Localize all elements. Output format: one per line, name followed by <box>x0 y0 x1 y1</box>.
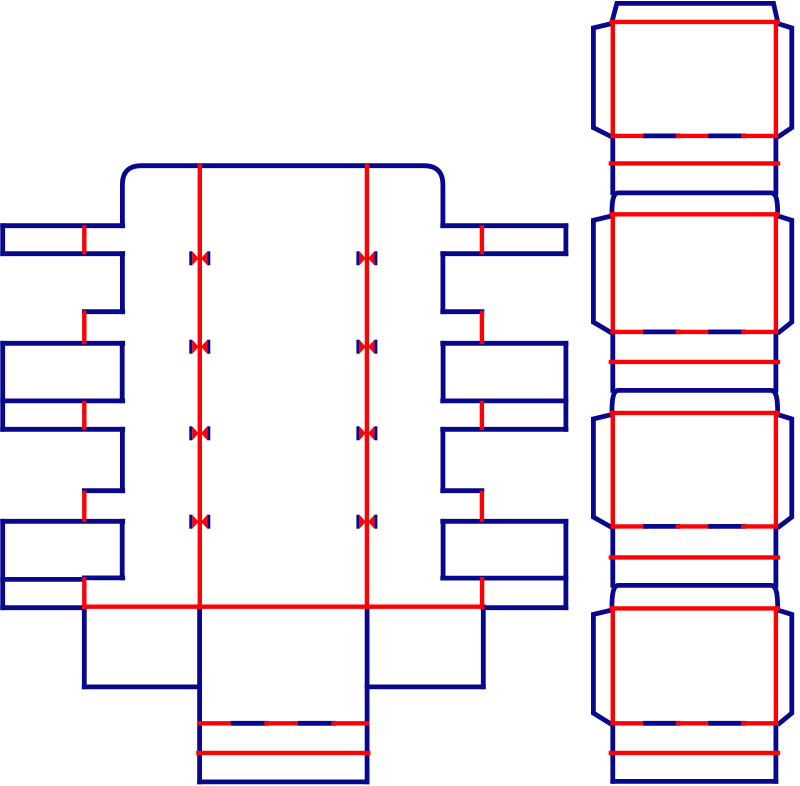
cut-path <box>593 216 612 332</box>
cut-path <box>778 216 792 332</box>
nick-bar <box>189 340 192 354</box>
nick-bar <box>374 251 377 265</box>
cut-path <box>593 610 612 723</box>
nick-bar <box>189 251 192 265</box>
nick-bar <box>207 251 210 265</box>
nick-bar <box>207 340 210 354</box>
nick-bar <box>374 340 377 354</box>
dieline-viewport <box>0 0 800 786</box>
nick-bar <box>374 426 377 440</box>
nick-bar <box>189 515 192 529</box>
sleeve-blank-group <box>593 3 791 781</box>
cut-path <box>593 24 612 136</box>
nick-bar <box>374 515 377 529</box>
dieline-drawing <box>0 0 800 786</box>
cut-path <box>122 166 443 226</box>
nick-bar <box>356 340 359 354</box>
nick-bar <box>356 251 359 265</box>
cut-path <box>612 390 778 413</box>
nick-bar <box>189 426 192 440</box>
cut-path <box>778 610 792 723</box>
nick-bar <box>356 426 359 440</box>
nick-bar <box>207 515 210 529</box>
tray-blank-group <box>3 166 566 782</box>
cut-path <box>778 24 792 136</box>
cut-path <box>778 415 792 527</box>
cut-path <box>612 585 778 608</box>
cut-path <box>612 193 778 214</box>
nick-bar <box>356 515 359 529</box>
cut-path <box>612 3 778 22</box>
nick-bar <box>207 426 210 440</box>
cut-path <box>593 415 612 527</box>
